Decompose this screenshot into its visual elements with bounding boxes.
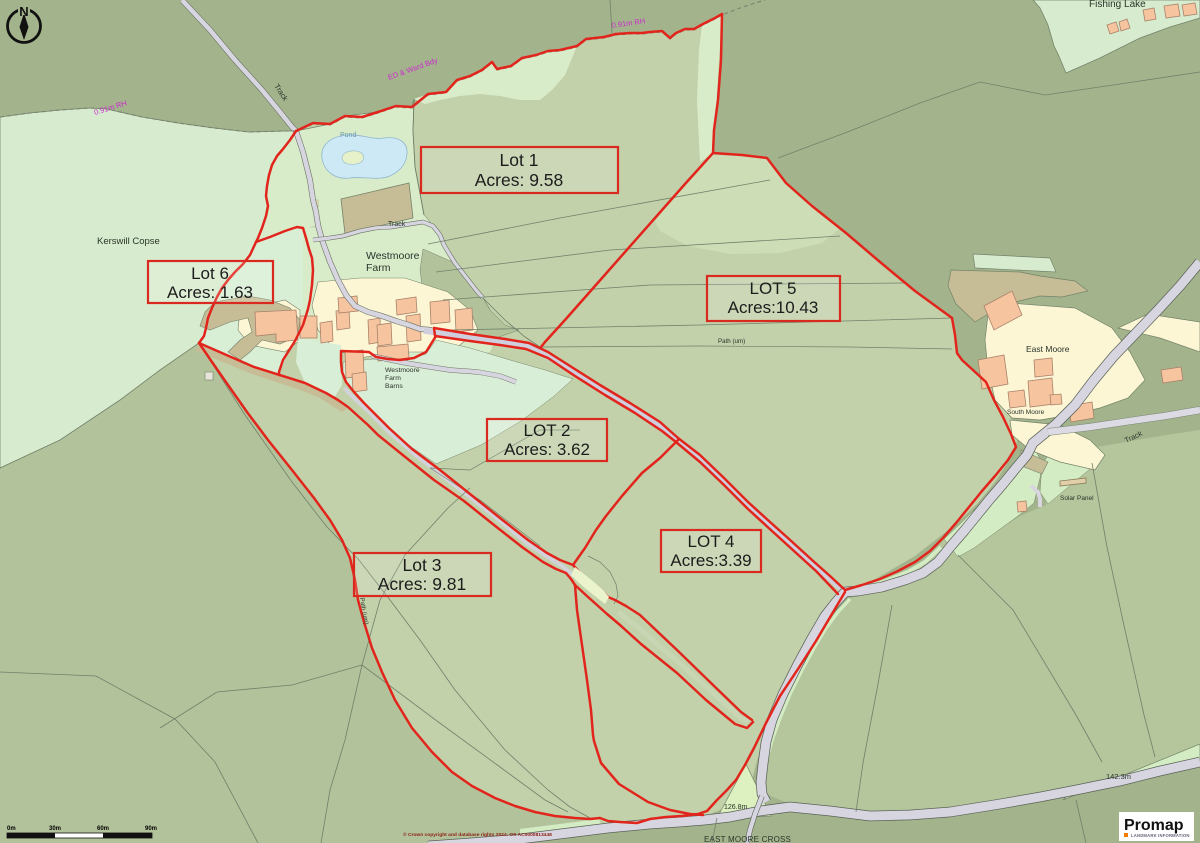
svg-text:90m: 90m <box>145 826 157 832</box>
svg-text:Westmoore: Westmoore <box>366 250 420 262</box>
svg-text:Pond: Pond <box>340 132 356 139</box>
svg-text:Lot 6: Lot 6 <box>191 264 229 283</box>
svg-text:Acres:3.39: Acres:3.39 <box>670 551 751 570</box>
svg-text:142.3m: 142.3m <box>1106 772 1131 781</box>
svg-text:Lot 1: Lot 1 <box>500 150 539 170</box>
svg-text:0m: 0m <box>7 826 16 832</box>
svg-text:Track: Track <box>388 221 406 228</box>
svg-text:Solar Panel: Solar Panel <box>1060 495 1094 502</box>
svg-text:Acres: 9.58: Acres: 9.58 <box>475 170 564 190</box>
svg-text:126.8m: 126.8m <box>724 804 748 811</box>
svg-text:Acres: 3.62: Acres: 3.62 <box>504 440 590 459</box>
svg-text:Westmoore: Westmoore <box>385 367 420 374</box>
svg-text:© Crown copyright and database: © Crown copyright and database rights 20… <box>403 831 552 838</box>
svg-text:Lot 3: Lot 3 <box>403 555 442 575</box>
svg-text:Fishing Lake: Fishing Lake <box>1089 0 1146 10</box>
svg-text:Kerswill Copse: Kerswill Copse <box>97 236 160 247</box>
svg-text:LOT 4: LOT 4 <box>688 532 735 551</box>
svg-text:N: N <box>19 4 28 19</box>
svg-text:East Moore: East Moore <box>1026 344 1070 354</box>
svg-text:60m: 60m <box>97 826 109 832</box>
svg-text:Acres:10.43: Acres:10.43 <box>728 298 819 317</box>
svg-text:Barns: Barns <box>385 383 403 390</box>
svg-text:South Moore: South Moore <box>1007 409 1045 416</box>
svg-text:Promap: Promap <box>1124 817 1184 834</box>
svg-text:Farm: Farm <box>366 262 391 274</box>
svg-text:LOT 2: LOT 2 <box>524 421 571 440</box>
svg-text:30m: 30m <box>49 826 61 832</box>
svg-text:LOT 5: LOT 5 <box>750 279 797 298</box>
svg-text:EAST MOORE CROSS: EAST MOORE CROSS <box>704 835 791 843</box>
svg-text:Path (um): Path (um) <box>718 338 745 345</box>
svg-text:Acres: 9.81: Acres: 9.81 <box>378 574 467 594</box>
svg-text:Acres: 1.63: Acres: 1.63 <box>167 283 253 302</box>
svg-text:LANDMARK INFORMATION: LANDMARK INFORMATION <box>1131 833 1190 838</box>
svg-text:Farm: Farm <box>385 375 401 382</box>
